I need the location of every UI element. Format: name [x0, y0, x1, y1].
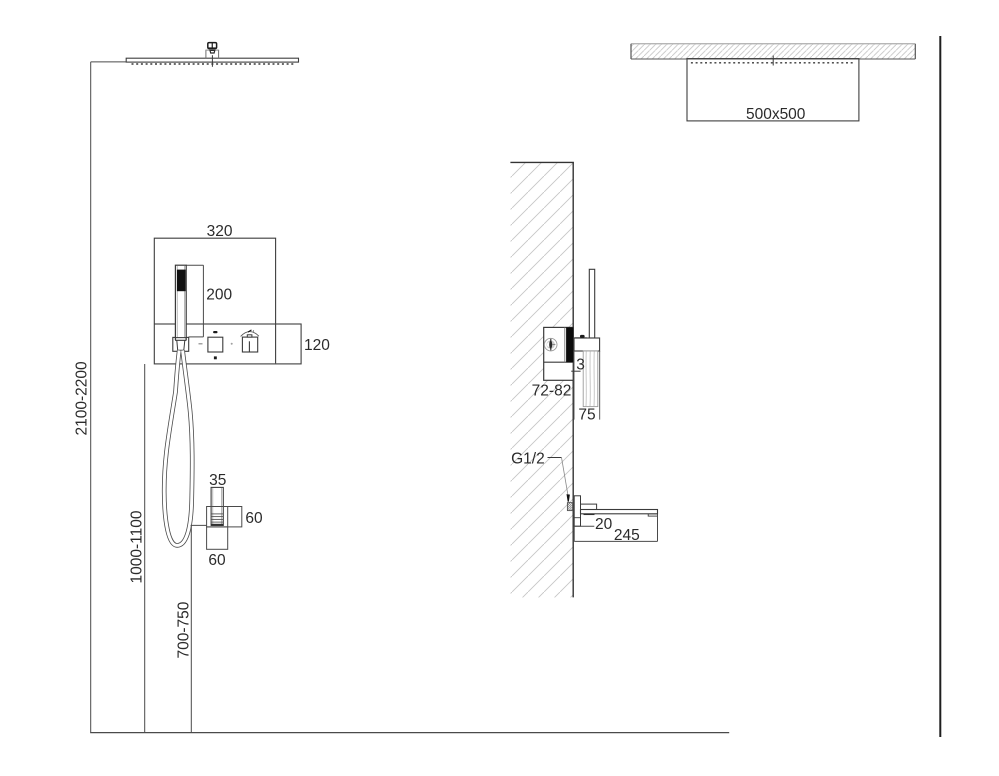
svg-text:700-750: 700-750 — [175, 601, 192, 658]
svg-text:200: 200 — [206, 287, 232, 304]
svg-text:3: 3 — [576, 357, 585, 374]
svg-text:320: 320 — [207, 223, 233, 240]
svg-text:60: 60 — [208, 552, 226, 569]
svg-text:2100-2200: 2100-2200 — [74, 361, 91, 436]
svg-text:20: 20 — [595, 516, 613, 533]
svg-text:500x500: 500x500 — [746, 106, 806, 123]
svg-text:60: 60 — [245, 510, 263, 527]
svg-text:72-82: 72-82 — [532, 382, 572, 399]
svg-text:245: 245 — [614, 527, 640, 544]
svg-text:1000-1100: 1000-1100 — [128, 510, 145, 583]
svg-text:120: 120 — [304, 337, 330, 354]
svg-text:35: 35 — [209, 472, 226, 489]
svg-text:75: 75 — [578, 407, 595, 424]
svg-text:G1/2: G1/2 — [511, 450, 545, 467]
